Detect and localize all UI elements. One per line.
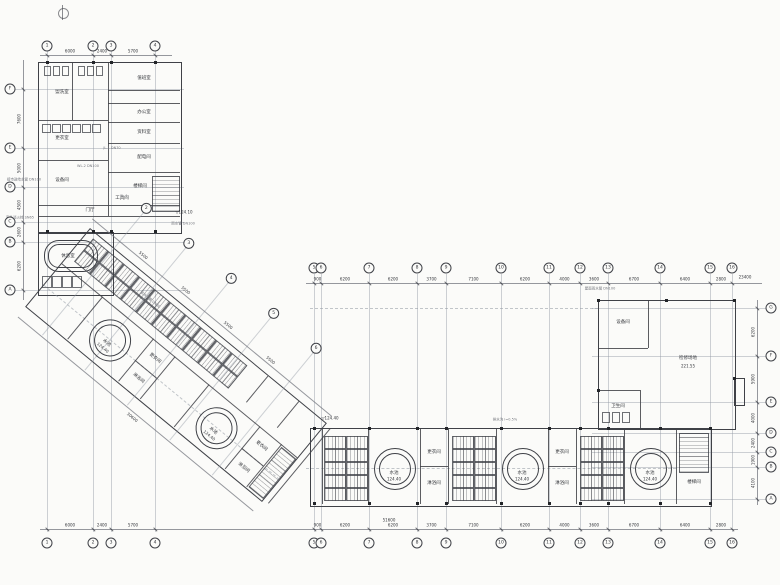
room-label: 门厅 [86,207,95,213]
column-marker [733,377,736,380]
axis-bubble: 6 [311,343,322,354]
axis-bubble: 9 [441,263,452,274]
interior-wall [676,429,677,504]
interior-wall [576,429,577,504]
room-label: 更衣间 [148,352,162,365]
dimension-label: 6200 [340,277,350,282]
room-label: 资料室 [137,129,151,135]
axis-bubble: 13 [603,538,614,549]
dimension-label: 3700 [426,277,436,282]
dimension-label: 6700 [629,277,639,282]
axis-bubble: C [5,217,16,228]
annotation: WL-2 DN100 [77,164,99,168]
axis-bubble: 15 [705,538,716,549]
column-marker [597,389,600,392]
axis-bubble: 6 [316,538,327,549]
axis-bubble: A [5,285,16,296]
axis-bubble: 14 [655,538,666,549]
dim-line [40,55,172,56]
dimension-label: 6200 [388,523,398,528]
column-marker [445,427,448,430]
interior-wall [108,122,180,123]
dimension-label: 7100 [468,523,478,528]
dimension-label: 2400 [97,49,107,54]
column-marker [313,502,316,505]
column-marker [607,427,610,430]
interior-wall [420,466,448,467]
axis-bubble: 13 [603,263,614,274]
room-label: 盥洗室 [55,89,69,95]
room-label: 设备间 [616,319,630,325]
column-marker [368,427,371,430]
axis-bubble: C [766,447,777,458]
interior-wall [548,466,576,467]
dimension-label: 6200 [520,523,530,528]
dim-total-label: 30600 [126,411,139,423]
axis-bubble: D [766,428,777,439]
interior-wall [38,216,180,217]
axis-bubble: E [766,397,777,408]
annotation: 屋面雨水管 DN100 [585,287,616,292]
axis-bubble: F [5,84,16,95]
axis-bubble: F [766,351,777,362]
dimension-label: 5000 [17,162,22,172]
dimension-label: 2800 [716,523,726,528]
dimension-label: 5700 [128,523,138,528]
room-label: 淋浴间 [555,480,569,486]
annotation: FL-1 [120,194,127,198]
pool-elevation: 124.40 [643,477,657,482]
axis-bubble: 9 [441,538,452,549]
interior-wall [648,300,649,348]
axis-bubble: 2 [88,538,99,549]
column-marker [416,427,419,430]
axis-bubble: B [5,237,16,248]
dimension-label: 7600 [17,113,22,123]
dimension-label: 6200 [388,277,398,282]
interior-wall [598,390,640,391]
column-marker [92,230,95,233]
interior-wall [322,429,323,504]
elevation-mark: ▽124.40 [321,416,338,421]
axis-bubble: A [766,494,777,505]
pool-label: 水池 [518,470,527,476]
column-marker [313,427,316,430]
column-marker [579,502,582,505]
axis-bubble: 2 [88,41,99,52]
dimension-label: 6400 [680,277,690,282]
room-label: 配电间 [137,154,151,160]
dimension-label: 4000 [559,277,569,282]
column-marker [548,502,551,505]
axis-bubble: 12 [575,538,586,549]
floor-plan-canvas: 6000240057009006200620037007100620040003… [0,0,780,585]
axis-bubble: 1 [42,538,53,549]
column-marker [368,502,371,505]
room-label: 设备间 [55,177,69,183]
room-label: 淋浴间 [237,461,251,474]
dimension-label: 6700 [629,523,639,528]
interior-wall [448,429,449,504]
column-marker [548,427,551,430]
interior-wall [640,390,641,428]
dimension-label: 6200 [17,261,22,271]
pool-label: 水池 [646,470,655,476]
axis-bubble: 1 [42,41,53,52]
axis-bubble: 11 [544,263,555,274]
interior-wall [62,263,298,458]
axis-bubble: 11 [544,538,555,549]
elevation-mark: ▽124.10 [175,210,192,215]
dimension-label: 5700 [128,49,138,54]
dimension-label: 3600 [589,523,599,528]
interior-wall [246,376,268,403]
room-label: 值班室 [137,75,151,81]
column-marker [416,502,419,505]
interior-wall [108,172,180,173]
axis-bubble: 3 [106,41,117,52]
room-label: 卫生间 [611,403,625,409]
axis-bubble: 2 [141,203,152,214]
dimension-label: 6400 [680,523,690,528]
interior-wall [72,62,73,120]
column-marker [500,427,503,430]
room-label: 检修场地 [679,355,697,361]
column-marker [709,502,712,505]
dimension-label: 3700 [426,523,436,528]
right-block-bay [734,378,745,406]
dimension-label: 2400 [97,523,107,528]
axis-bubble: G [766,303,777,314]
axis-bubble: 8 [412,538,423,549]
dim-total-label: 51600 [383,518,396,523]
room-label: 更衣室 [55,135,69,141]
axis-bubble: 8 [412,263,423,274]
dimension-label: 3600 [589,277,599,282]
dimension-label: 4000 [559,523,569,528]
dimension-label: 5900 [751,374,756,384]
axis-bubble: 7 [364,538,375,549]
room-label: 休息室 [61,253,75,259]
pool-elevation: 124.40 [515,477,529,482]
dimension-label: 6200 [520,277,530,282]
dim-line [40,529,738,530]
dimension-label: 1900 [751,454,756,464]
axis-bubble: B [766,462,777,473]
column-marker [110,61,113,64]
axis-bubble: 16 [727,263,738,274]
column-marker [607,502,610,505]
column-marker [665,299,668,302]
column-marker [500,502,503,505]
axis-bubble: E [5,143,16,154]
column-marker [733,299,736,302]
annotation: JL-1 DN70 [103,146,120,150]
dimension-label: 6000 [65,523,75,528]
dimension-label: 6200 [340,523,350,528]
dimension-label: 6000 [65,49,75,54]
dimension-label: 6200 [751,327,756,337]
pool-label: 水池 [390,470,399,476]
axis-bubble: 10 [496,263,507,274]
column-marker [110,230,113,233]
dimension-label: 2400 [751,437,756,447]
interior-wall [38,120,108,121]
interior-wall [108,143,180,144]
dimension-label: 900 [314,277,322,282]
dimension-label: 2800 [716,277,726,282]
dimension-label: 4000 [751,412,756,422]
axis-bubble: 14 [655,263,666,274]
interior-wall [108,103,180,104]
dim-line [306,283,762,284]
interior-wall [598,348,648,349]
pool-elevation: 124.40 [387,477,401,482]
axis-bubble: 10 [496,538,507,549]
column-marker [659,427,662,430]
interior-wall [38,160,108,161]
room-elevation: 221.55 [681,364,695,369]
interior-wall [277,401,299,428]
room-label: 楼梯间 [687,479,701,485]
axis-bubble: 15 [705,263,716,274]
axis-bubble: D [5,182,16,193]
interior-wall [108,90,180,91]
dimension-label: 2600 [17,227,22,237]
north-arrow-icon [62,5,63,20]
room-label: 更衣间 [254,439,268,452]
axis-bubble: 6 [316,263,327,274]
axis-bubble: 7 [364,263,375,274]
axis-bubble: 4 [226,273,237,284]
grid-centerline [310,308,598,309]
column-marker [579,427,582,430]
dimension-label: 4500 [17,199,22,209]
column-marker [154,61,157,64]
north-arrow-icon [58,8,69,19]
axis-bubble: 5 [268,308,279,319]
annotation: 雨水管 DN100 [171,222,195,227]
column-marker [154,230,157,233]
dimension-label: 7100 [468,277,478,282]
interior-wall [38,205,180,206]
column-marker [46,230,49,233]
column-marker [445,502,448,505]
axis-bubble: 3 [183,238,194,249]
column-marker [46,61,49,64]
column-marker [92,61,95,64]
dim-total-label: 23400 [739,275,752,280]
column-marker [659,502,662,505]
axis-bubble: 4 [150,538,161,549]
room-label: 更衣间 [427,449,441,455]
interior-wall [624,429,625,504]
room-label: 淋浴间 [131,372,145,385]
room-label: 淋浴间 [427,480,441,486]
axis-bubble: 3 [106,538,117,549]
axis-bubble: 12 [575,263,586,274]
room-label: 更衣间 [555,449,569,455]
room-label: 办公室 [137,109,151,115]
column-marker [709,427,712,430]
axis-bubble: 16 [727,538,738,549]
room-label: 楼梯间 [133,183,147,189]
axis-bubble: 4 [150,41,161,52]
interior-wall [108,62,109,216]
dimension-label: 900 [314,523,322,528]
column-marker [597,299,600,302]
interior-wall [368,429,369,504]
diagonal-wing: 水池124.40水池124.40234565500550055005500306… [25,228,327,502]
annotation: 排水沟 i=0.5% [493,418,517,423]
dimension-label: 4100 [751,478,756,488]
interior-wall [496,429,497,504]
